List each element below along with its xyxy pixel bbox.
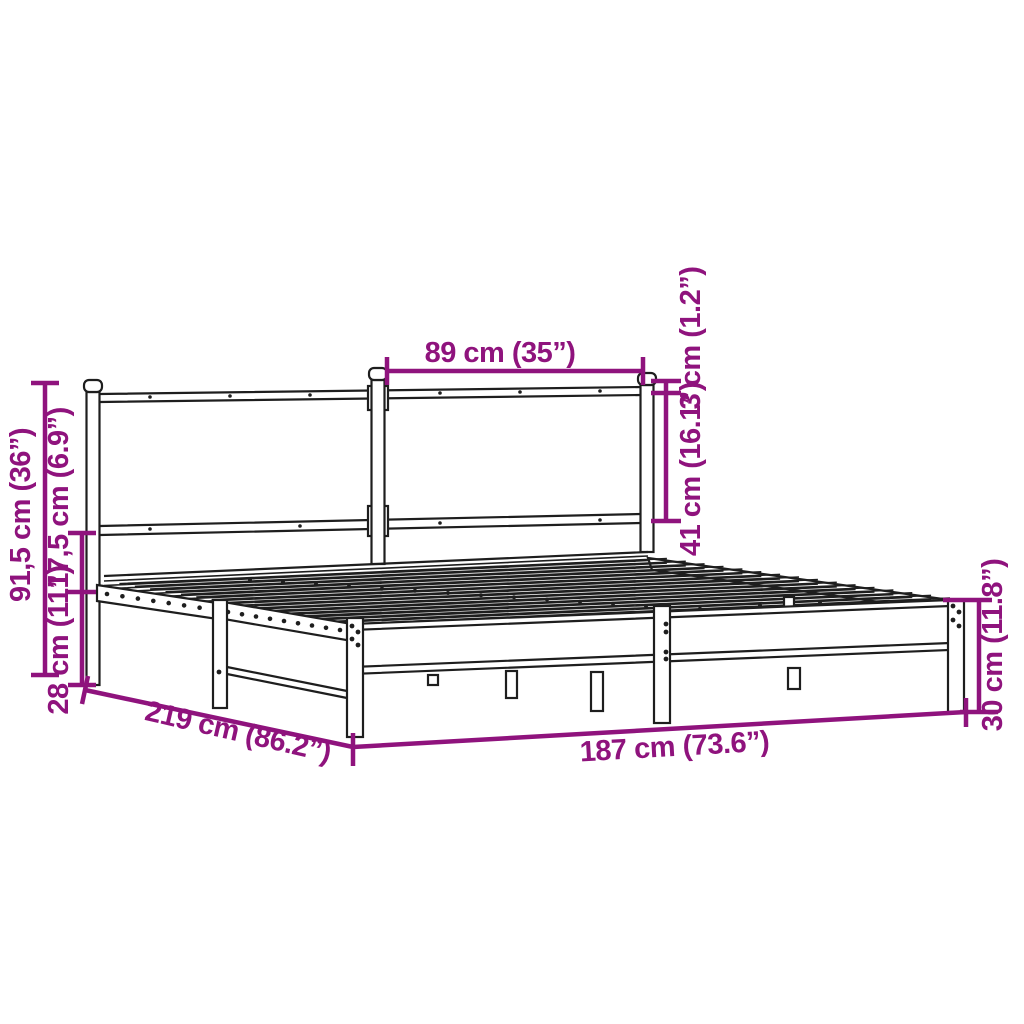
center-leg-1 (506, 671, 517, 698)
dimension-headboard-panel-height: 41 cm (16.1”) (651, 382, 707, 556)
headboard-post-left (87, 392, 100, 685)
dimension-label-28cm: 28 cm (11”) (43, 565, 75, 714)
dimension-label-17-5cm: 17,5 cm (6.9”) (43, 407, 75, 589)
frame-clip-left (428, 675, 438, 685)
dimension-label-219cm: 219 cm (86.2”) (142, 695, 334, 769)
side-stretcher-left (227, 667, 347, 698)
center-leg-3 (788, 668, 800, 689)
center-leg-2 (591, 672, 603, 711)
dimension-label-89cm: 89 cm (35”) (425, 337, 576, 369)
diagram-canvas: 89 cm (35”) 3 cm (1.2”) 41 cm (16.1”) 91… (0, 0, 1024, 1024)
headboard-post-middle (372, 380, 385, 564)
leg-mid-left (213, 600, 227, 708)
bed-frame-drawing (84, 368, 964, 737)
dimension-headboard-section-width: 89 cm (35”) (387, 337, 643, 385)
bed-frame-dimension-diagram: 89 cm (35”) 3 cm (1.2”) 41 cm (16.1”) 91… (0, 0, 1024, 1024)
dimension-label-30cm: 30 cm (11.8”) (977, 559, 1009, 731)
post-cap-middle (369, 368, 387, 380)
dimension-label-91-5cm: 91,5 cm (36”) (5, 428, 37, 602)
post-cap-left (84, 380, 102, 392)
headboard-post-right (641, 385, 654, 552)
leg-front-right (948, 600, 964, 712)
leg-front-left (347, 618, 363, 737)
dimension-label-41cm: 41 cm (16.1”) (675, 382, 707, 556)
leg-front-middle (654, 606, 670, 723)
